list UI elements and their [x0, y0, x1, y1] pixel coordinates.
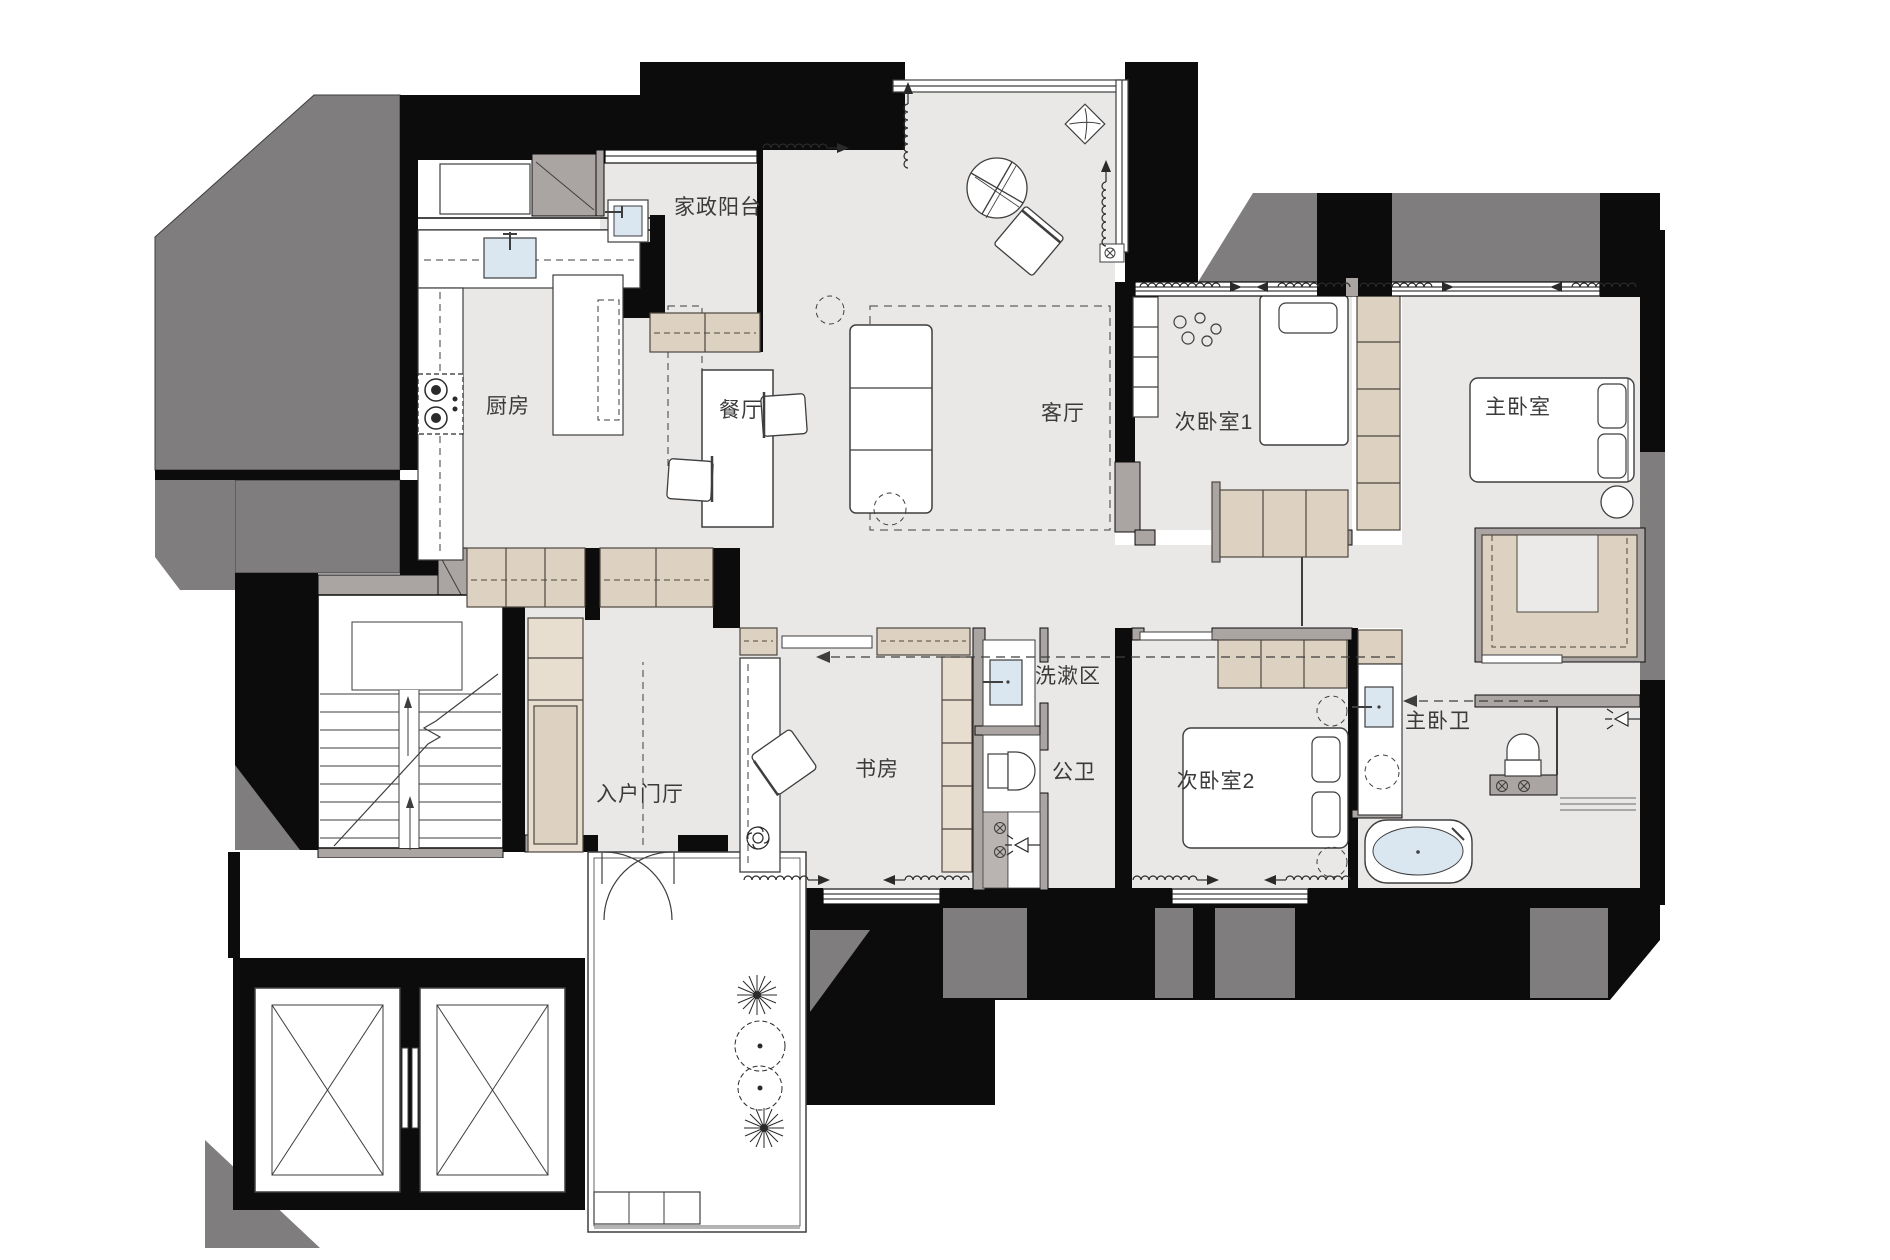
- window: [605, 150, 757, 163]
- room-label-wash-area: 洗漱区: [1035, 665, 1101, 688]
- window: [823, 889, 940, 904]
- drain-icon: [1100, 244, 1124, 262]
- room-label-public-bath: 公卫: [1052, 761, 1096, 784]
- room-label-kitchen: 厨房: [486, 395, 530, 418]
- toilet: [1505, 734, 1541, 776]
- floor-plan: 家政阳台厨房餐厅客厅次卧室1主卧室入户门厅书房洗漱区公卫次卧室2主卧卫: [0, 0, 1890, 1260]
- island-counter: [553, 275, 623, 435]
- laundry-cabinet: [650, 313, 760, 352]
- bookshelf: [942, 657, 972, 872]
- wardrobe: [1212, 482, 1348, 562]
- toilet: [988, 752, 1035, 790]
- floor-plan-page: 家政阳台厨房餐厅客厅次卧室1主卧室入户门厅书房洗漱区公卫次卧室2主卧卫: [0, 0, 1890, 1260]
- stove: [418, 374, 463, 434]
- kitchen-sink: [484, 232, 536, 278]
- room-label-living: 客厅: [1041, 402, 1085, 425]
- washing-machine: [605, 200, 648, 242]
- walk-in-closet: [1475, 528, 1645, 663]
- shelf: [1133, 297, 1158, 417]
- dining-chair: [667, 456, 714, 502]
- shoe-cabinet: [528, 618, 583, 852]
- bathtub: [1365, 820, 1472, 883]
- bedside-table: [1601, 486, 1633, 518]
- bench: [594, 1192, 700, 1224]
- room-label-master-bath: 主卧卫: [1405, 710, 1471, 733]
- public-bath-zone: [983, 640, 1040, 888]
- balcony-table: [967, 158, 1027, 218]
- double-bed: [1470, 378, 1634, 482]
- room-label-bedroom-1: 次卧室1: [1175, 411, 1254, 434]
- wardrobe-column: [1357, 295, 1400, 530]
- dining-table: [702, 370, 773, 527]
- closet-door: [1482, 655, 1562, 663]
- room-label-foyer: 入户门厅: [596, 783, 684, 806]
- sliding-door: [782, 636, 872, 648]
- room-label-study: 书房: [855, 758, 899, 781]
- room-label-master-bedroom: 主卧室: [1485, 396, 1551, 419]
- sofa: [850, 325, 932, 513]
- vanity: [1352, 630, 1402, 815]
- corridor: [240, 858, 585, 958]
- room-label-laundry-balcony: 家政阳台: [674, 196, 762, 219]
- wardrobe: [1218, 640, 1347, 688]
- entry-porch: [588, 852, 806, 1232]
- window: [1172, 889, 1308, 904]
- dining-chair: [761, 392, 808, 438]
- room-label-bedroom-2: 次卧室2: [1177, 770, 1256, 793]
- room-label-dining: 餐厅: [719, 399, 763, 422]
- single-bed: [1260, 295, 1348, 445]
- sliding-door: [1140, 632, 1212, 640]
- upper-cabinet: [440, 164, 530, 214]
